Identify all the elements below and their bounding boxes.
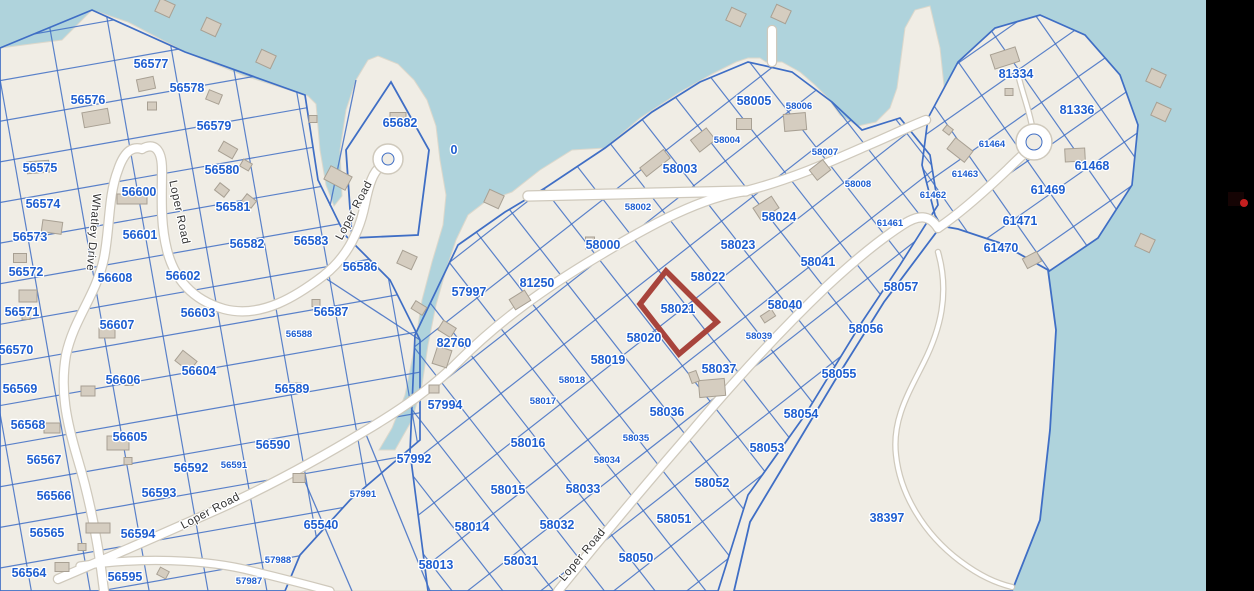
parcel-label-57994[interactable]: 57994 [428, 398, 463, 412]
building [19, 290, 37, 302]
parcel-label-58057[interactable]: 58057 [884, 280, 919, 294]
parcel-label-56592[interactable]: 56592 [174, 461, 209, 475]
parcel-label-57988[interactable]: 57988 [265, 555, 291, 566]
parcel-label-56564[interactable]: 56564 [12, 566, 47, 580]
parcel-label-58031[interactable]: 58031 [504, 554, 539, 568]
parcel-label-38397[interactable]: 38397 [870, 511, 905, 525]
parcel-label-58017[interactable]: 58017 [530, 396, 556, 407]
parcel-label-57997[interactable]: 57997 [452, 285, 487, 299]
parcel-label-58056[interactable]: 58056 [849, 322, 884, 336]
building [124, 458, 132, 465]
building [55, 563, 69, 572]
parcel-label-58014[interactable]: 58014 [455, 520, 490, 534]
parcel-label-58032[interactable]: 58032 [540, 518, 575, 532]
parcel-label-58000[interactable]: 58000 [586, 238, 621, 252]
parcel-label-58054[interactable]: 58054 [784, 407, 819, 421]
parcel-label-0[interactable]: 0 [451, 143, 458, 157]
parcel-label-58033[interactable]: 58033 [566, 482, 601, 496]
parcel-label-56608[interactable]: 56608 [98, 271, 133, 285]
parcel-label-65682[interactable]: 65682 [383, 116, 418, 130]
parcel-label-82760[interactable]: 82760 [437, 336, 472, 350]
parcel-label-58020[interactable]: 58020 [627, 331, 662, 345]
parcel-label-58039[interactable]: 58039 [746, 331, 772, 342]
parcel-label-58050[interactable]: 58050 [619, 551, 654, 565]
parcel-label-56567[interactable]: 56567 [27, 453, 62, 467]
parcel-label-58004[interactable]: 58004 [714, 135, 741, 146]
parcel-label-58040[interactable]: 58040 [768, 298, 803, 312]
parcel-label-56586[interactable]: 56586 [343, 260, 378, 274]
parcel-label-61464[interactable]: 61464 [979, 139, 1006, 150]
parcel-label-58053[interactable]: 58053 [750, 441, 785, 455]
parcel-label-56573[interactable]: 56573 [13, 230, 48, 244]
parcel-label-56583[interactable]: 56583 [294, 234, 329, 248]
parcel-label-56568[interactable]: 56568 [11, 418, 46, 432]
parcel-label-58007[interactable]: 58007 [812, 147, 838, 158]
parcel-label-58002[interactable]: 58002 [625, 202, 651, 213]
parcel-label-56574[interactable]: 56574 [26, 197, 61, 211]
parcel-label-58006[interactable]: 58006 [786, 101, 812, 112]
building [14, 254, 27, 263]
cul-de-sac-center [1026, 134, 1042, 150]
parcel-label-58021[interactable]: 58021 [661, 302, 696, 316]
building [698, 378, 725, 397]
road-pier [528, 191, 746, 196]
parcel-label-56571[interactable]: 56571 [5, 305, 40, 319]
parcel-label-56600[interactable]: 56600 [122, 185, 157, 199]
building [81, 386, 95, 396]
parcel-label-56606[interactable]: 56606 [106, 373, 141, 387]
parcel-label-56593[interactable]: 56593 [142, 486, 177, 500]
building [1005, 89, 1013, 96]
building [86, 523, 110, 533]
parcel-label-81334[interactable]: 81334 [999, 67, 1034, 81]
parcel-label-58015[interactable]: 58015 [491, 483, 526, 497]
parcel-label-57992[interactable]: 57992 [397, 452, 432, 466]
parcel-label-56594[interactable]: 56594 [121, 527, 156, 541]
building [737, 119, 752, 130]
parcel-label-56572[interactable]: 56572 [9, 265, 44, 279]
parcel-label-56590[interactable]: 56590 [256, 438, 291, 452]
parcel-label-56582[interactable]: 56582 [230, 237, 265, 251]
parcel-label-58051[interactable]: 58051 [657, 512, 692, 526]
side-strip [1206, 0, 1254, 591]
parcel-label-61463[interactable]: 61463 [952, 169, 978, 180]
parcel-label-56595[interactable]: 56595 [108, 570, 143, 584]
parcel-label-58036[interactable]: 58036 [650, 405, 685, 419]
parcel-label-56569[interactable]: 56569 [3, 382, 38, 396]
parcel-label-61470[interactable]: 61470 [984, 241, 1019, 255]
cul-de-sac-center [382, 153, 394, 165]
parcel-label-58016[interactable]: 58016 [511, 436, 546, 450]
parcel-label-58005[interactable]: 58005 [737, 94, 772, 108]
parcel-label-56579[interactable]: 56579 [197, 119, 232, 133]
parcel-label-56605[interactable]: 56605 [113, 430, 148, 444]
parcel-label-56602[interactable]: 56602 [166, 269, 201, 283]
building [148, 102, 157, 110]
parcel-label-56577[interactable]: 56577 [134, 57, 169, 71]
parcel-label-65540[interactable]: 65540 [304, 518, 339, 532]
parcel-label-58008[interactable]: 58008 [845, 179, 871, 190]
parcel-label-56587[interactable]: 56587 [314, 305, 349, 319]
parcel-label-58022[interactable]: 58022 [691, 270, 726, 284]
map-viewport[interactable]: 5657756576565785657956575565805660056574… [0, 0, 1254, 591]
parcel-label-58018[interactable]: 58018 [559, 375, 585, 386]
parcel-label-56570[interactable]: 56570 [0, 343, 33, 357]
parcel-label-58034[interactable]: 58034 [594, 455, 621, 466]
parcel-map-canvas[interactable]: 5657756576565785657956575565805660056574… [0, 0, 1254, 591]
building [44, 423, 60, 433]
building [78, 544, 86, 551]
parcel-label-56588[interactable]: 56588 [286, 329, 312, 340]
parcel-label-58019[interactable]: 58019 [591, 353, 626, 367]
parcel-label-56576[interactable]: 56576 [71, 93, 106, 107]
parcel-label-58024[interactable]: 58024 [762, 210, 797, 224]
parcel-label-56575[interactable]: 56575 [23, 161, 58, 175]
parcel-label-58003[interactable]: 58003 [663, 162, 698, 176]
parcel-label-58023[interactable]: 58023 [721, 238, 756, 252]
parcel-label-56565[interactable]: 56565 [30, 526, 65, 540]
parcel-label-81336[interactable]: 81336 [1060, 103, 1095, 117]
parcel-label-56580[interactable]: 56580 [205, 163, 240, 177]
parcel-label-61471[interactable]: 61471 [1003, 214, 1038, 228]
parcel-label-58037[interactable]: 58037 [702, 362, 737, 376]
parcel-label-56601[interactable]: 56601 [123, 228, 158, 242]
building [293, 474, 305, 483]
parcel-label-81250[interactable]: 81250 [520, 276, 555, 290]
map-marker-dot[interactable] [1240, 199, 1248, 207]
parcel-label-56578[interactable]: 56578 [170, 81, 205, 95]
building [783, 113, 806, 132]
parcel-label-61469[interactable]: 61469 [1031, 183, 1066, 197]
parcel-label-58055[interactable]: 58055 [822, 367, 857, 381]
building [429, 385, 439, 393]
parcel-label-56607[interactable]: 56607 [100, 318, 135, 332]
parcel-label-56566[interactable]: 56566 [37, 489, 72, 503]
parcel-label-61461[interactable]: 61461 [877, 218, 904, 229]
parcel-label-58052[interactable]: 58052 [695, 476, 730, 490]
parcel-label-56603[interactable]: 56603 [181, 306, 216, 320]
parcel-label-57987[interactable]: 57987 [236, 576, 262, 587]
parcel-label-61462[interactable]: 61462 [920, 190, 946, 201]
parcel-label-56604[interactable]: 56604 [182, 364, 217, 378]
parcel-label-57991[interactable]: 57991 [350, 489, 377, 500]
parcel-label-58013[interactable]: 58013 [419, 558, 454, 572]
parcel-label-61468[interactable]: 61468 [1075, 159, 1110, 173]
building [309, 116, 317, 123]
parcel-label-58041[interactable]: 58041 [801, 255, 836, 269]
parcel-label-56589[interactable]: 56589 [275, 382, 310, 396]
parcel-label-58035[interactable]: 58035 [623, 433, 650, 444]
parcel-label-56581[interactable]: 56581 [216, 200, 251, 214]
parcel-label-56591[interactable]: 56591 [221, 460, 248, 471]
